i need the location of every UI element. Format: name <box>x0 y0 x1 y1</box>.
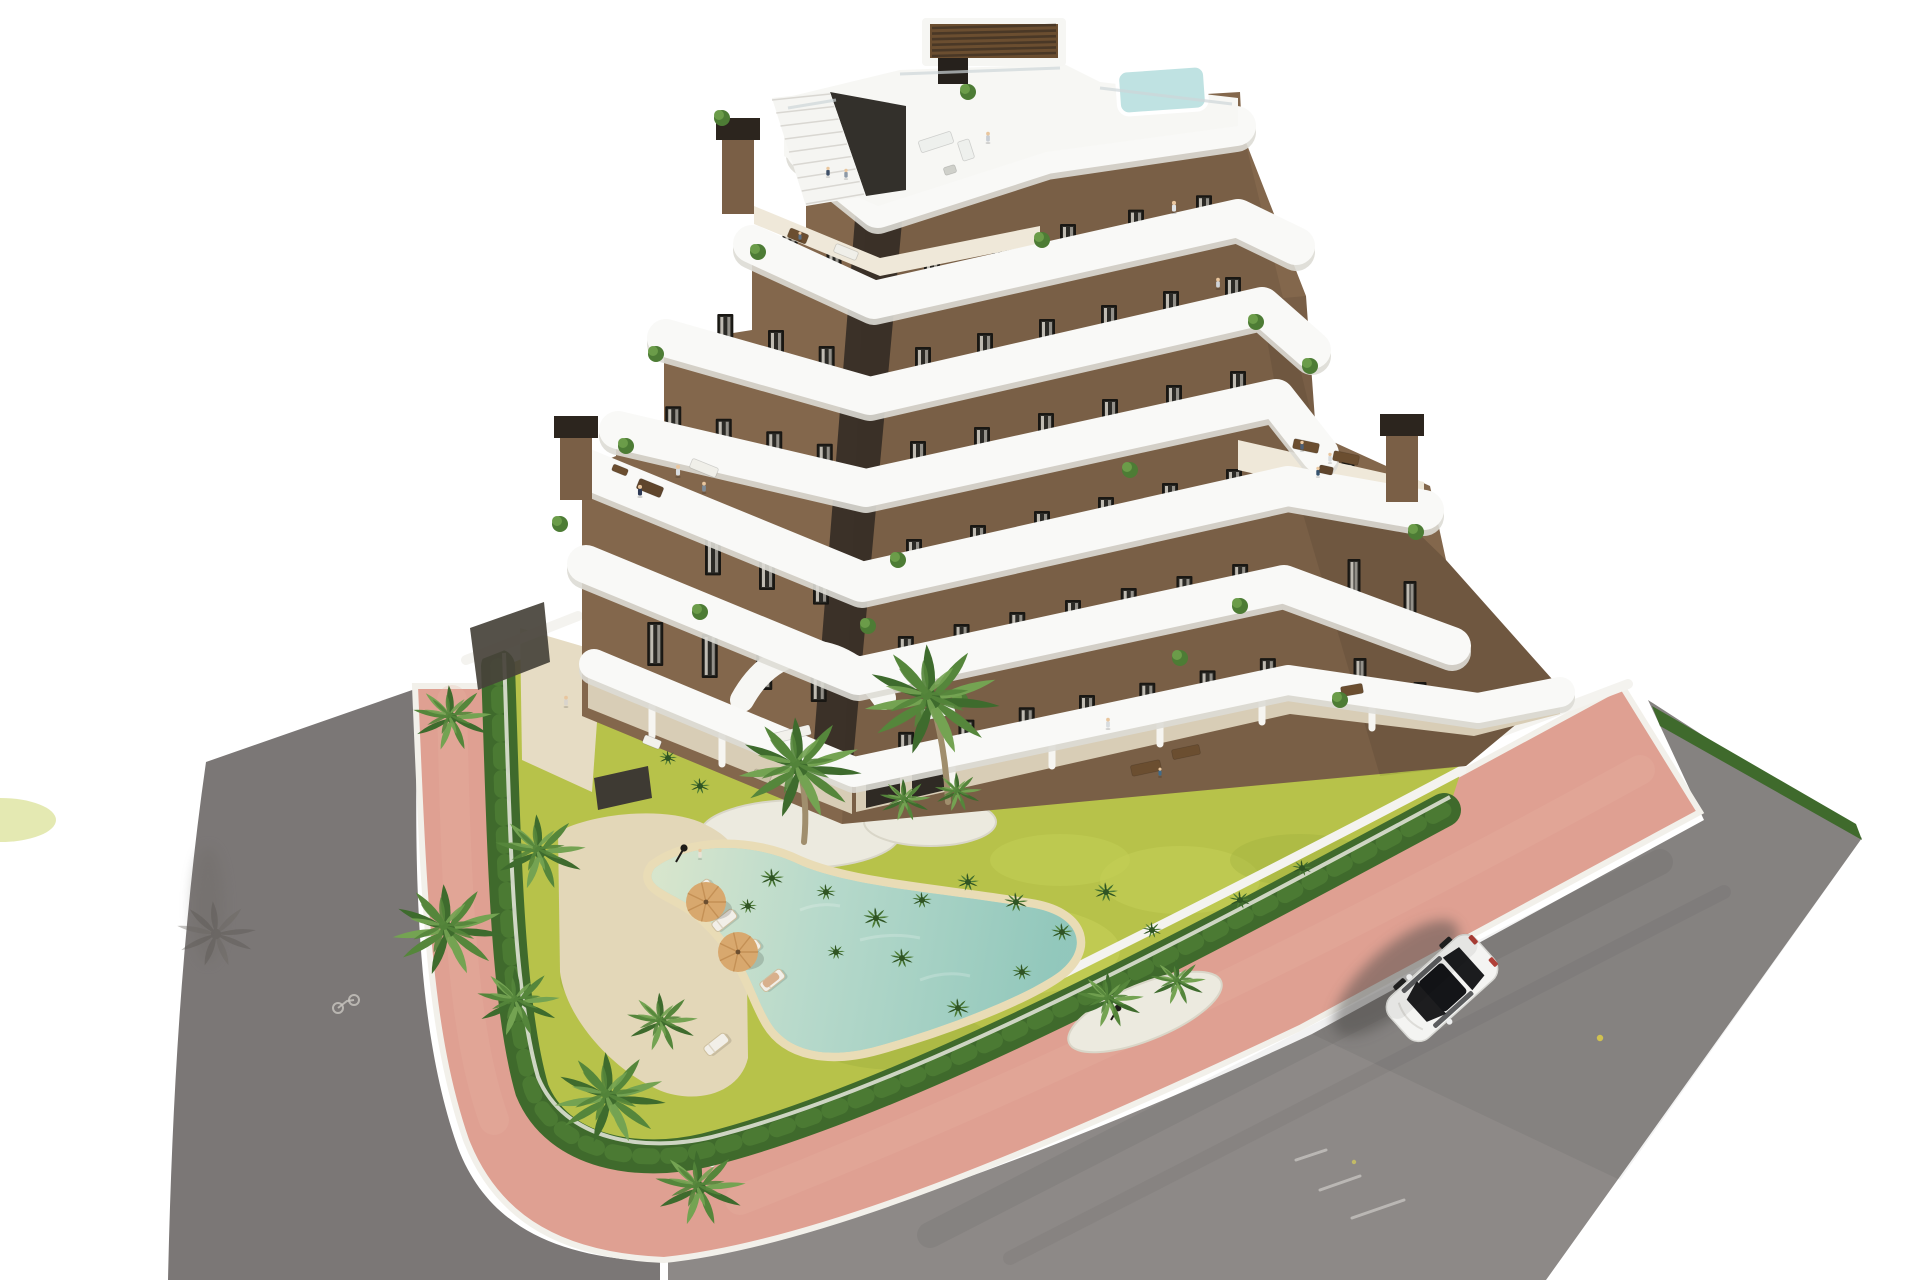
palm-crown-center <box>899 955 905 961</box>
rooftop-pool <box>1117 65 1208 115</box>
potted-plant <box>1302 358 1318 374</box>
person-body <box>676 469 680 476</box>
person-head <box>1158 768 1161 771</box>
person-shadow <box>1316 476 1320 478</box>
window <box>647 622 663 666</box>
chimney <box>1386 428 1418 502</box>
person-shadow <box>1328 462 1332 464</box>
person-shadow <box>1216 288 1221 290</box>
person-body <box>1316 470 1319 476</box>
palm-crown-center <box>745 903 751 909</box>
palm-crown-center <box>511 995 518 1002</box>
potted-plant <box>1332 692 1348 708</box>
person-body <box>844 172 847 178</box>
palm-crown-center <box>1103 889 1109 895</box>
person-head <box>1106 718 1110 722</box>
person-body <box>798 234 801 239</box>
person-shadow <box>1158 776 1162 777</box>
palm-crown-center <box>1173 977 1179 983</box>
person-head <box>1328 453 1331 456</box>
render-canvas <box>0 0 1920 1280</box>
person-body <box>1300 444 1303 450</box>
person-head <box>844 169 847 172</box>
plant-foliage-light <box>648 346 658 356</box>
potted-plant <box>1172 650 1188 666</box>
person-shadow <box>1300 450 1304 452</box>
potted-plant <box>1248 314 1264 330</box>
palm-crown-center <box>439 921 448 930</box>
plant-foliage-light <box>750 244 760 254</box>
person-head <box>1300 441 1303 444</box>
window-curtain <box>1355 562 1358 594</box>
person-head <box>1172 201 1176 205</box>
person-body <box>1106 721 1110 727</box>
person-body <box>698 852 701 858</box>
person-shadow <box>826 176 830 178</box>
potted-plant <box>552 516 568 532</box>
umbrella-pole <box>704 900 709 905</box>
palm-crown-center <box>601 1089 610 1098</box>
window-curtain <box>705 637 708 675</box>
person-head <box>798 232 801 235</box>
person-body <box>986 135 990 141</box>
scene-svg <box>0 0 1920 1280</box>
palm-crown-center <box>823 889 829 895</box>
potted-plant <box>648 346 664 362</box>
person-head <box>986 132 990 136</box>
person-head <box>676 465 680 469</box>
palm-crown-center <box>211 929 221 939</box>
palm-crown-center <box>900 795 906 801</box>
person-head <box>826 167 829 170</box>
palm-crown-center <box>665 755 671 761</box>
plant-foliage-light <box>618 438 628 448</box>
person-shadow <box>637 496 642 498</box>
plant-foliage-light <box>860 618 870 628</box>
window-curtain <box>650 625 653 663</box>
person-body <box>1158 770 1161 775</box>
plant-foliage-light <box>1408 524 1418 534</box>
person-body <box>826 170 829 176</box>
palm-crown-center <box>953 787 959 793</box>
palm-crown-center <box>1299 865 1305 871</box>
potted-plant <box>714 110 730 126</box>
palm-crown-center <box>965 879 971 885</box>
person-head <box>1216 278 1220 282</box>
potted-plant <box>1122 462 1138 478</box>
plant-foliage-light <box>714 110 724 120</box>
potted-plant <box>1232 598 1248 614</box>
palm-crown-center <box>1059 929 1065 935</box>
palm-crown-center <box>769 875 775 881</box>
person-shadow <box>798 240 802 241</box>
palm-crown-center <box>955 1005 961 1011</box>
plant-foliage-light <box>890 552 900 562</box>
person-head <box>698 849 701 852</box>
palm-crown-center <box>533 845 540 852</box>
plant-foliage-light <box>1034 232 1044 242</box>
person-head <box>702 482 706 486</box>
potted-plant <box>618 438 634 454</box>
palm-crown-center <box>873 915 879 921</box>
potted-plant <box>890 552 906 568</box>
plant-foliage-light <box>1332 692 1342 702</box>
person-shadow <box>698 858 702 860</box>
potted-plant <box>692 604 708 620</box>
plant-foliage-light <box>692 604 702 614</box>
person-shadow <box>986 142 991 144</box>
person-body <box>1216 281 1220 287</box>
person-body <box>702 485 706 491</box>
person-shadow <box>844 178 848 180</box>
person-head <box>564 696 568 700</box>
potted-plant <box>1034 232 1050 248</box>
person-body <box>638 489 642 496</box>
chimney-cap <box>554 416 598 438</box>
potted-plant <box>750 244 766 260</box>
palm-crown-center <box>1149 927 1155 933</box>
palm-crown-center <box>790 758 800 768</box>
person-body <box>1328 456 1331 462</box>
palm-crown-center <box>693 1181 700 1188</box>
person-body <box>1172 205 1176 212</box>
palm-crown-center <box>656 1016 662 1022</box>
plant-foliage-light <box>1172 650 1182 660</box>
plant-foliage-light <box>552 516 562 526</box>
chimney <box>560 430 592 500</box>
person-shadow <box>1106 728 1111 730</box>
plant-foliage-light <box>1302 358 1312 368</box>
palm-crown-center <box>446 712 452 718</box>
chimney-cap <box>1380 414 1424 436</box>
potted-plant <box>960 84 976 100</box>
umbrella <box>718 932 758 972</box>
person-shadow <box>1171 212 1176 214</box>
potted-plant <box>1408 524 1424 540</box>
plant-foliage-light <box>1232 598 1242 608</box>
potted-plant <box>860 618 876 634</box>
palm-crown-center <box>921 689 932 700</box>
person-shadow <box>564 706 569 708</box>
plant-foliage-light <box>1248 314 1258 324</box>
palm-crown-center <box>919 897 925 903</box>
palm-crown-center <box>833 949 839 955</box>
plant-foliage-light <box>960 84 970 94</box>
palm-crown-center <box>1013 899 1019 905</box>
person-body <box>564 699 568 705</box>
person-head <box>1316 467 1319 470</box>
palm-crown-center <box>1019 969 1025 975</box>
person-shadow <box>702 492 707 494</box>
window-curtain <box>657 625 660 663</box>
plant-foliage-light <box>1122 462 1132 472</box>
umbrella-pole <box>736 950 741 955</box>
palm-crown-center <box>1104 994 1110 1000</box>
palm-crown-center <box>1237 897 1243 903</box>
umbrella <box>686 882 726 922</box>
person-shadow <box>675 476 680 478</box>
chimney <box>722 132 754 214</box>
person-head <box>638 485 642 489</box>
palm-crown-center <box>697 783 703 789</box>
